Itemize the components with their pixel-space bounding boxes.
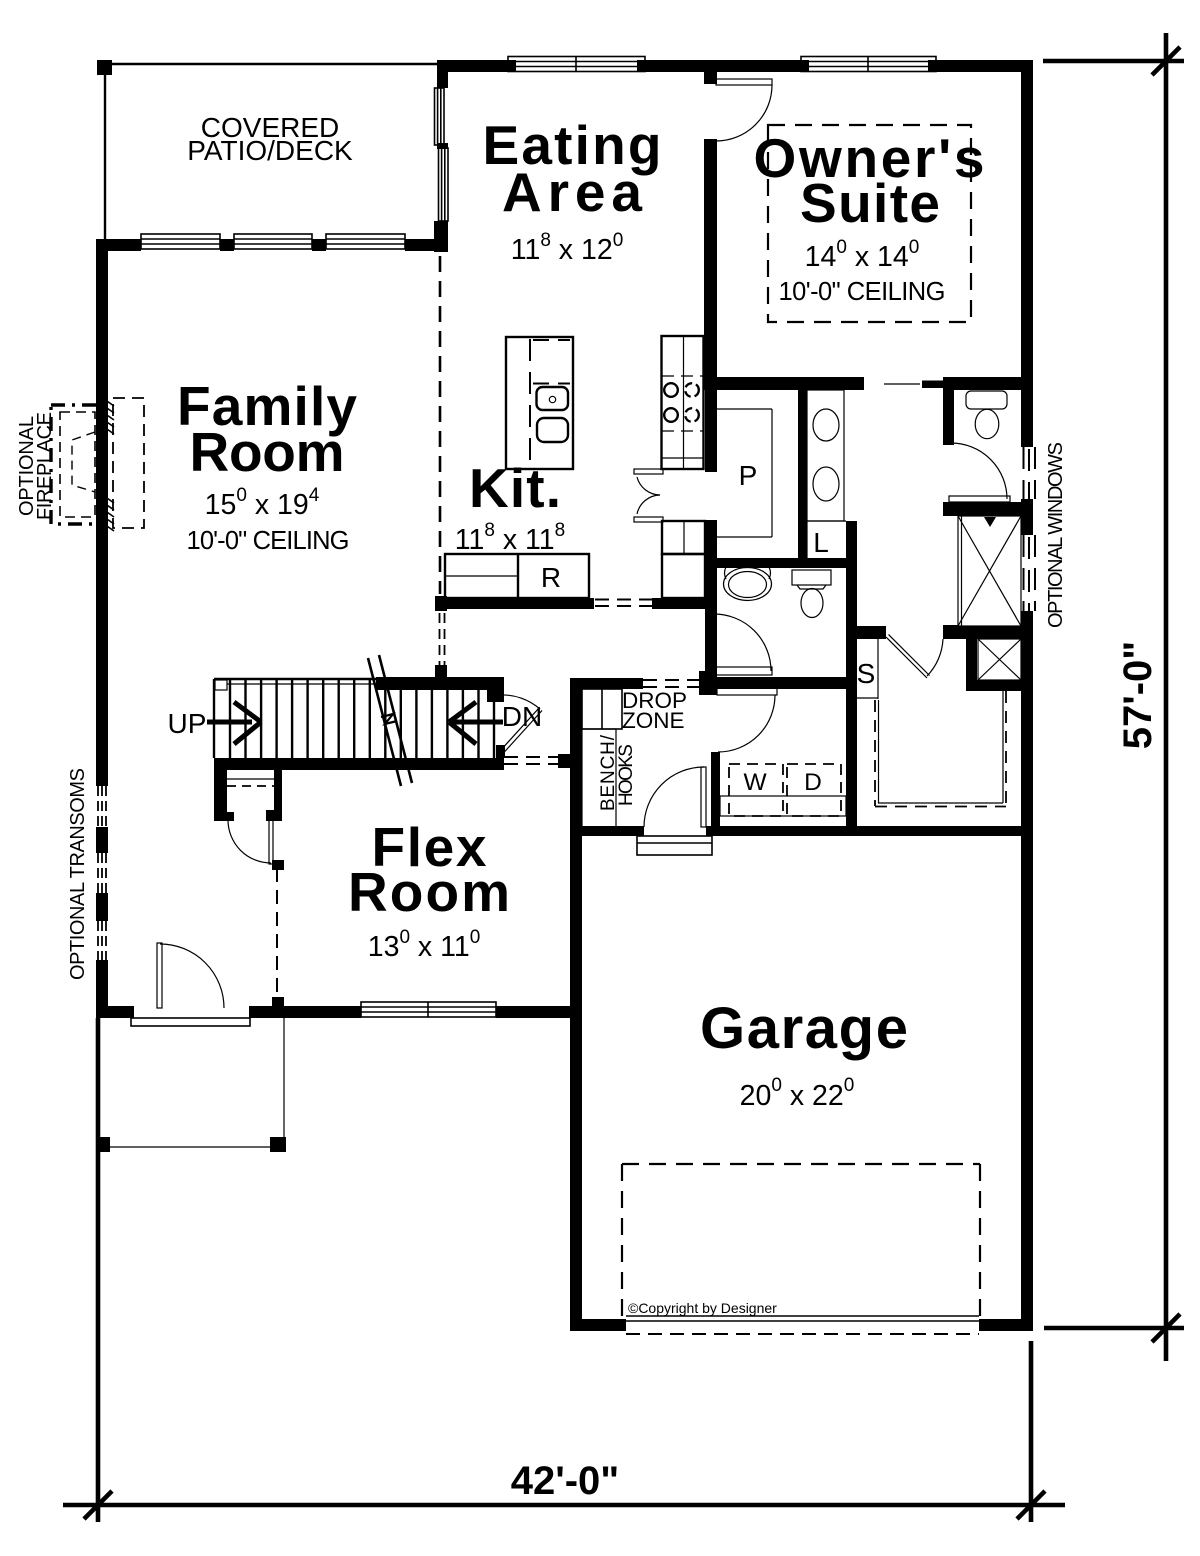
svg-text:P: P <box>739 460 758 491</box>
svg-text:Room: Room <box>348 861 510 923</box>
svg-text:42'-0": 42'-0" <box>511 1459 620 1503</box>
svg-text:OPTIONAL TRANSOMS: OPTIONAL TRANSOMS <box>67 768 89 980</box>
svg-text:DN: DN <box>502 701 542 732</box>
svg-text:200 x 220: 200 x 220 <box>740 1075 855 1112</box>
svg-text:L: L <box>813 527 829 558</box>
svg-text:PATIO/DECK: PATIO/DECK <box>187 135 353 166</box>
svg-text:S: S <box>857 658 876 689</box>
svg-text:57'-0": 57'-0" <box>1116 641 1160 750</box>
svg-text:D: D <box>804 769 822 796</box>
svg-text:150 x 194: 150 x 194 <box>205 485 320 521</box>
svg-text:W: W <box>743 769 767 796</box>
svg-text:©Copyright by Designer: ©Copyright by Designer <box>628 1300 777 1316</box>
svg-text:HOOKS: HOOKS <box>616 744 637 806</box>
svg-text:Kit.: Kit. <box>469 457 561 519</box>
svg-text:Garage: Garage <box>700 996 908 1061</box>
svg-text:FIREPLACE: FIREPLACE <box>34 412 56 520</box>
svg-text:UP: UP <box>168 708 207 739</box>
svg-text:Room: Room <box>190 421 345 483</box>
svg-text:140 x 140: 140 x 140 <box>805 237 920 273</box>
svg-text:130 x 110: 130 x 110 <box>368 927 481 963</box>
svg-text:10'-0" CEILING: 10'-0" CEILING <box>779 278 946 306</box>
svg-text:ZONE: ZONE <box>622 708 685 733</box>
svg-text:Suite: Suite <box>800 172 940 234</box>
svg-text:10'-0" CEILING: 10'-0" CEILING <box>187 527 350 555</box>
svg-text:R: R <box>541 562 561 593</box>
svg-text:OPTIONAL WINDOWS: OPTIONAL WINDOWS <box>1045 442 1067 628</box>
svg-text:118 x 120: 118 x 120 <box>511 230 624 266</box>
svg-text:118 x 118: 118 x 118 <box>455 520 565 556</box>
